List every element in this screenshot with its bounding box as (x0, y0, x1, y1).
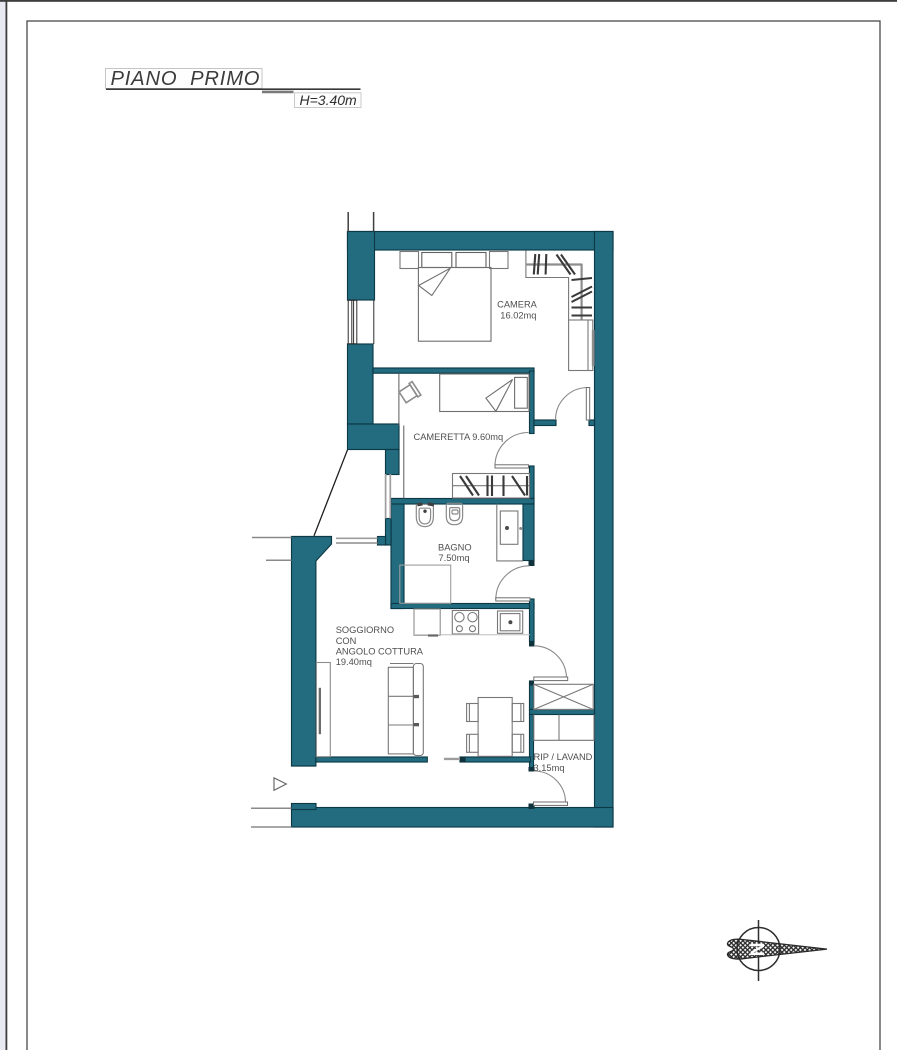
svg-text:CAMERETTA 9.60mq: CAMERETTA 9.60mq (414, 432, 504, 442)
svg-text:ANGOLO COTTURA: ANGOLO COTTURA (336, 646, 424, 656)
svg-text:16.02mq: 16.02mq (500, 311, 536, 321)
svg-text:19.40mq: 19.40mq (336, 657, 372, 667)
svg-text:BAGNO: BAGNO (438, 542, 472, 552)
svg-text:3.15mq: 3.15mq (534, 763, 565, 773)
svg-text:CAMERA: CAMERA (497, 300, 538, 310)
svg-text:N: N (745, 943, 766, 957)
svg-text:PIANO PRIMO: PIANO PRIMO (111, 68, 261, 90)
svg-text:7.50mq: 7.50mq (438, 553, 469, 563)
svg-text:RIP / LAVAND: RIP / LAVAND (534, 752, 593, 762)
svg-text:SOGGIORNO: SOGGIORNO (336, 625, 394, 635)
svg-text:H=3.40m: H=3.40m (300, 92, 358, 108)
svg-text:CON: CON (336, 636, 357, 646)
